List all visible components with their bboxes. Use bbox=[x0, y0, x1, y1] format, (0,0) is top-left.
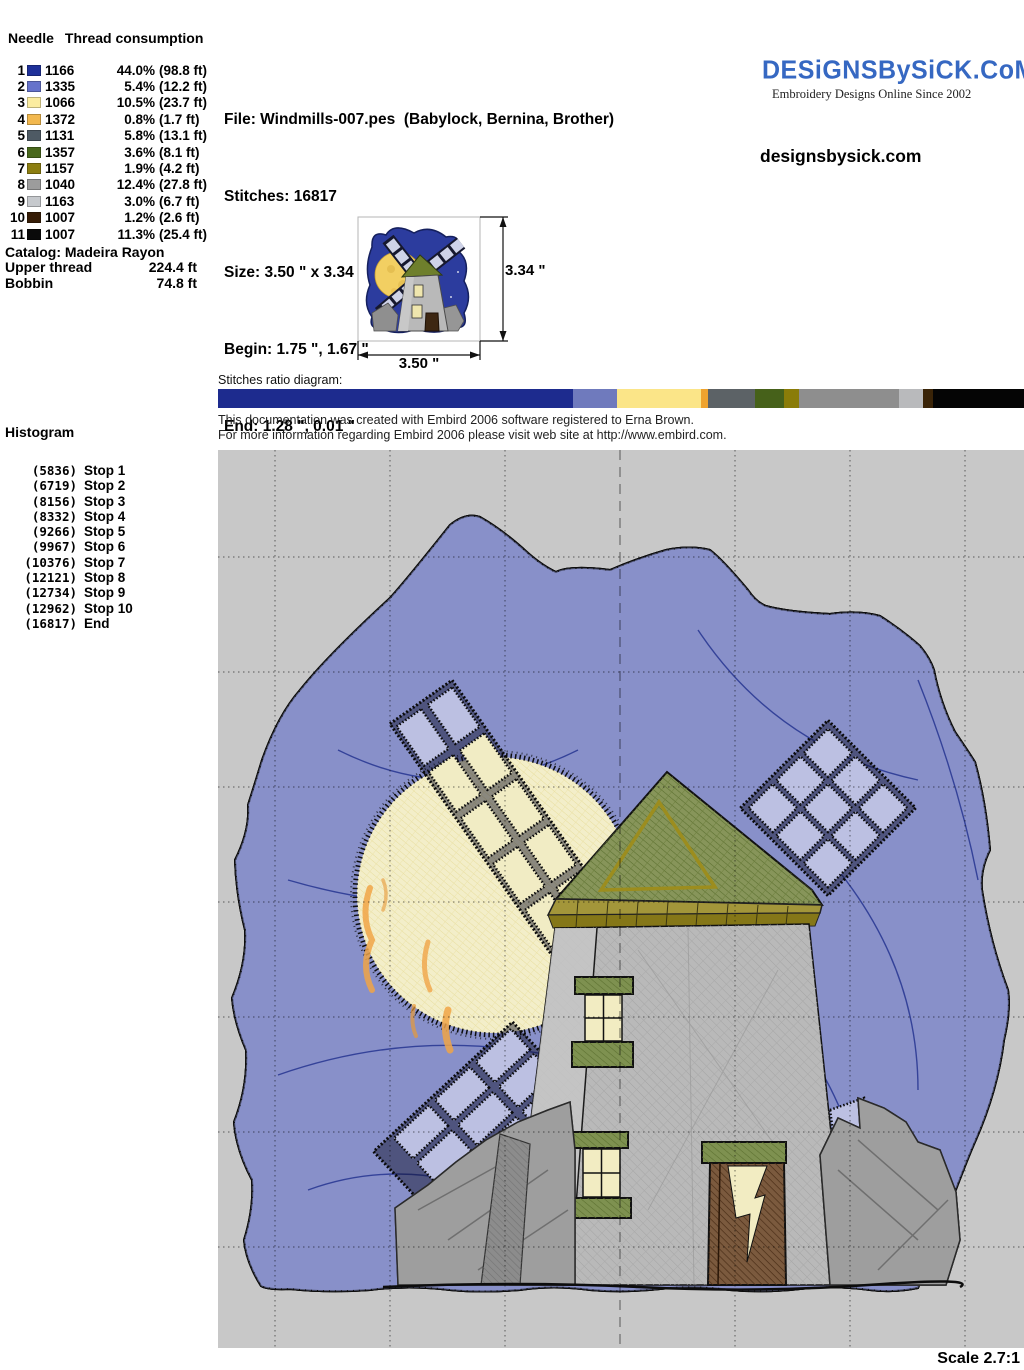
needle-number: 6 bbox=[5, 145, 25, 160]
thread-percent: 11.3% bbox=[93, 227, 155, 242]
thread-percent: 5.8% bbox=[93, 128, 155, 143]
histogram-row: (6719) Stop 2 bbox=[5, 478, 205, 493]
thread-color-swatch bbox=[27, 130, 41, 141]
thread-length: (27.8 ft) bbox=[159, 177, 207, 192]
stitches-ratio-bar bbox=[218, 389, 1024, 408]
stop-label: Stop 5 bbox=[84, 524, 125, 539]
thread-percent: 5.4% bbox=[93, 79, 155, 94]
upper-thread-value: 224.4 ft bbox=[149, 260, 197, 275]
ratio-segment bbox=[708, 389, 755, 408]
thread-rows: 1 1166 44.0% (98.8 ft) 2 1335 5.4% (12.2… bbox=[5, 62, 220, 242]
thread-percent: 3.0% bbox=[93, 194, 155, 209]
file-info-line: File: Windmills-007.pes (Babylock, Berni… bbox=[224, 110, 614, 129]
thread-length: (8.1 ft) bbox=[159, 145, 200, 160]
thread-row: 1 1166 44.0% (98.8 ft) bbox=[5, 62, 220, 78]
thread-color-swatch bbox=[27, 65, 41, 76]
stop-label: End bbox=[84, 616, 110, 631]
thread-table-header: Needle Thread consumption bbox=[5, 30, 220, 46]
needle-number: 9 bbox=[5, 194, 25, 209]
scale-label: Scale 2.7:1 bbox=[850, 1350, 1020, 1368]
ratio-segment bbox=[933, 389, 1024, 408]
thread-percent: 12.4% bbox=[93, 177, 155, 192]
thread-length: (12.2 ft) bbox=[159, 79, 207, 94]
thread-row: 2 1335 5.4% (12.2 ft) bbox=[5, 78, 220, 94]
histogram-row: (10376) Stop 7 bbox=[5, 555, 205, 570]
histogram-row: (9967) Stop 6 bbox=[5, 539, 205, 554]
stop-label: Stop 4 bbox=[84, 509, 125, 524]
catalog-block: Catalog: Madeira Rayon Upper thread 224.… bbox=[5, 245, 197, 291]
needle-number: 10 bbox=[5, 210, 25, 225]
thread-row: 3 1066 10.5% (23.7 ft) bbox=[5, 95, 220, 111]
thread-code: 1131 bbox=[45, 128, 93, 143]
ratio-segment bbox=[923, 389, 933, 408]
stop-label: Stop 10 bbox=[84, 601, 133, 616]
thread-color-swatch bbox=[27, 229, 41, 240]
thread-code: 1007 bbox=[45, 227, 93, 242]
stop-label: Stop 6 bbox=[84, 539, 125, 554]
thread-color-swatch bbox=[27, 147, 41, 158]
file-info-line: Stitches: 16817 bbox=[224, 187, 614, 206]
ratio-segment bbox=[899, 389, 923, 408]
thread-percent: 1.2% bbox=[93, 210, 155, 225]
histogram-row: (8332) Stop 4 bbox=[5, 509, 205, 524]
thread-length: (25.4 ft) bbox=[159, 227, 207, 242]
thread-code: 1163 bbox=[45, 194, 93, 209]
stitch-count: (12962) bbox=[5, 601, 77, 616]
thread-length: (2.6 ft) bbox=[159, 210, 200, 225]
thread-consumption-table: Needle Thread consumption 1 1166 44.0% (… bbox=[5, 30, 220, 242]
stitch-count: (12734) bbox=[5, 585, 77, 600]
thread-color-swatch bbox=[27, 179, 41, 190]
bobbin-row: Bobbin 74.8 ft bbox=[5, 276, 197, 291]
ratio-segment bbox=[573, 389, 617, 408]
thread-code: 1157 bbox=[45, 161, 93, 176]
thread-percent: 44.0% bbox=[93, 63, 155, 78]
histogram-row: (16817) End bbox=[5, 616, 205, 631]
thread-length: (13.1 ft) bbox=[159, 128, 207, 143]
thread-code: 1066 bbox=[45, 95, 93, 110]
designsbysick-logo: DESiGNSBySiCK.CoM bbox=[762, 55, 1020, 85]
thread-length: (98.8 ft) bbox=[159, 63, 207, 78]
thumbnail-art bbox=[366, 228, 468, 333]
thread-percent: 1.9% bbox=[93, 161, 155, 176]
thread-code: 1357 bbox=[45, 145, 93, 160]
needle-number: 11 bbox=[5, 227, 25, 242]
ratio-segment bbox=[617, 389, 702, 408]
stitch-count: (16817) bbox=[5, 616, 77, 631]
thread-percent: 3.6% bbox=[93, 145, 155, 160]
histogram-row: (9266) Stop 5 bbox=[5, 524, 205, 539]
stop-label: Stop 3 bbox=[84, 494, 125, 509]
embird-note-line: This documentation was created with Embi… bbox=[218, 413, 727, 428]
stitch-count: (10376) bbox=[5, 555, 77, 570]
thread-color-swatch bbox=[27, 212, 41, 223]
stitch-count: (8332) bbox=[5, 509, 77, 524]
col-thread-consumption: Thread consumption bbox=[65, 30, 203, 46]
needle-number: 1 bbox=[5, 63, 25, 78]
ratio-segment bbox=[799, 389, 899, 408]
histogram-entries: (5836) Stop 1 (6719) Stop 2 (8156) Stop … bbox=[5, 463, 205, 631]
thread-code: 1166 bbox=[45, 63, 93, 78]
height-dimension-label: 3.34 " bbox=[505, 262, 545, 279]
needle-number: 4 bbox=[5, 112, 25, 127]
stop-label: Stop 2 bbox=[84, 478, 125, 493]
histogram-row: (5836) Stop 1 bbox=[5, 463, 205, 478]
design-canvas bbox=[218, 450, 1024, 1348]
embird-note-line: For more information regarding Embird 20… bbox=[218, 428, 727, 443]
thread-row: 10 1007 1.2% (2.6 ft) bbox=[5, 210, 220, 226]
needle-number: 7 bbox=[5, 161, 25, 176]
thread-length: (23.7 ft) bbox=[159, 95, 207, 110]
ratio-segment bbox=[218, 389, 573, 408]
thread-percent: 10.5% bbox=[93, 95, 155, 110]
thread-color-swatch bbox=[27, 196, 41, 207]
upper-thread-row: Upper thread 224.4 ft bbox=[5, 260, 197, 275]
thread-length: (4.2 ft) bbox=[159, 161, 200, 176]
stitch-count: (9967) bbox=[5, 539, 77, 554]
thread-code: 1335 bbox=[45, 79, 93, 94]
needle-number: 8 bbox=[5, 177, 25, 192]
histogram-title: Histogram bbox=[5, 424, 205, 440]
histogram-block: Histogram (5836) Stop 1 (6719) Stop 2 (8… bbox=[5, 424, 205, 631]
height-dimension-line bbox=[480, 217, 508, 341]
width-dimension-label: 3.50 " bbox=[384, 355, 454, 372]
ratio-diagram-label: Stitches ratio diagram: bbox=[218, 373, 342, 387]
ratio-segment bbox=[784, 389, 799, 408]
catalog-title: Catalog: Madeira Rayon bbox=[5, 245, 197, 260]
embroidery-doc-page: { "thread_table": { "col1": "Needle", "c… bbox=[0, 0, 1024, 1370]
logo-tagline: Embroidery Designs Online Since 2002 bbox=[772, 87, 1012, 102]
thread-color-swatch bbox=[27, 114, 41, 125]
thread-length: (1.7 ft) bbox=[159, 112, 200, 127]
needle-number: 2 bbox=[5, 79, 25, 94]
thread-length: (6.7 ft) bbox=[159, 194, 200, 209]
thread-row: 11 1007 11.3% (25.4 ft) bbox=[5, 226, 220, 242]
upper-thread-label: Upper thread bbox=[5, 260, 92, 275]
thread-row: 8 1040 12.4% (27.8 ft) bbox=[5, 177, 220, 193]
stitch-count: (5836) bbox=[5, 463, 77, 478]
stitch-count: (6719) bbox=[5, 478, 77, 493]
thread-percent: 0.8% bbox=[93, 112, 155, 127]
thread-code: 1007 bbox=[45, 210, 93, 225]
thread-row: 6 1357 3.6% (8.1 ft) bbox=[5, 144, 220, 160]
stop-label: Stop 9 bbox=[84, 585, 125, 600]
thread-color-swatch bbox=[27, 163, 41, 174]
thread-row: 9 1163 3.0% (6.7 ft) bbox=[5, 193, 220, 209]
thread-code: 1040 bbox=[45, 177, 93, 192]
ratio-segment bbox=[755, 389, 784, 408]
thread-row: 7 1157 1.9% (4.2 ft) bbox=[5, 160, 220, 176]
stop-label: Stop 1 bbox=[84, 463, 125, 478]
bobbin-label: Bobbin bbox=[5, 276, 53, 291]
door bbox=[702, 1142, 786, 1285]
thread-row: 4 1372 0.8% (1.7 ft) bbox=[5, 111, 220, 127]
thread-code: 1372 bbox=[45, 112, 93, 127]
site-name: designsbysick.com bbox=[760, 146, 921, 167]
bobbin-value: 74.8 ft bbox=[157, 276, 197, 291]
thread-row: 5 1131 5.8% (13.1 ft) bbox=[5, 128, 220, 144]
thread-color-swatch bbox=[27, 97, 41, 108]
stop-label: Stop 7 bbox=[84, 555, 125, 570]
stop-label: Stop 8 bbox=[84, 570, 125, 585]
embird-note: This documentation was created with Embi… bbox=[218, 413, 727, 442]
needle-number: 5 bbox=[5, 128, 25, 143]
histogram-row: (12121) Stop 8 bbox=[5, 570, 205, 585]
needle-number: 3 bbox=[5, 95, 25, 110]
col-needle: Needle bbox=[8, 30, 54, 46]
stitch-count: (8156) bbox=[5, 494, 77, 509]
histogram-row: (12734) Stop 9 bbox=[5, 585, 205, 600]
preview-thumbnail bbox=[340, 210, 585, 385]
histogram-row: (8156) Stop 3 bbox=[5, 494, 205, 509]
stitch-count: (12121) bbox=[5, 570, 77, 585]
thread-color-swatch bbox=[27, 81, 41, 92]
histogram-row: (12962) Stop 10 bbox=[5, 601, 205, 616]
stitch-count: (9266) bbox=[5, 524, 77, 539]
